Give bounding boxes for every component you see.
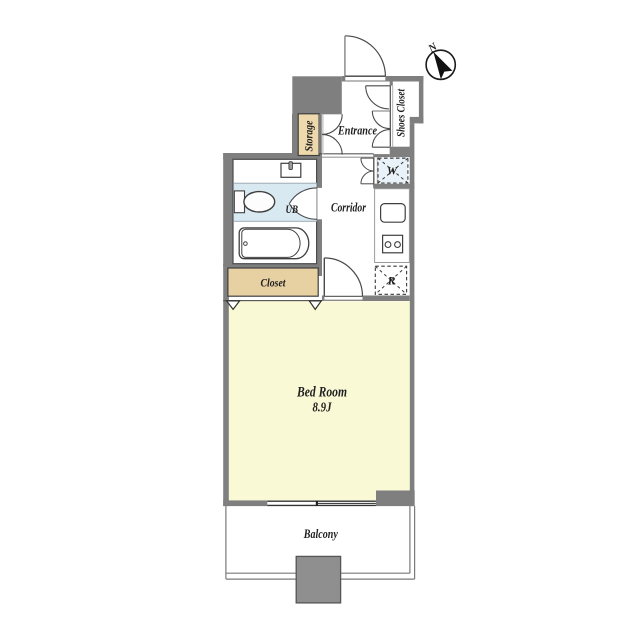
svg-text:UB: UB (286, 204, 299, 216)
svg-text:Balcony: Balcony (303, 526, 338, 541)
svg-text:Closet: Closet (261, 275, 287, 289)
svg-text:Entrance: Entrance (337, 122, 377, 137)
svg-text:8.9J: 8.9J (313, 400, 333, 415)
svg-text:R: R (387, 275, 396, 287)
svg-text:Corridor: Corridor (331, 199, 367, 214)
svg-text:W: W (387, 166, 398, 178)
svg-text:Shoes Closet: Shoes Closet (396, 88, 408, 137)
svg-text:Bed Room: Bed Room (296, 385, 347, 401)
svg-text:Storage: Storage (304, 121, 316, 152)
